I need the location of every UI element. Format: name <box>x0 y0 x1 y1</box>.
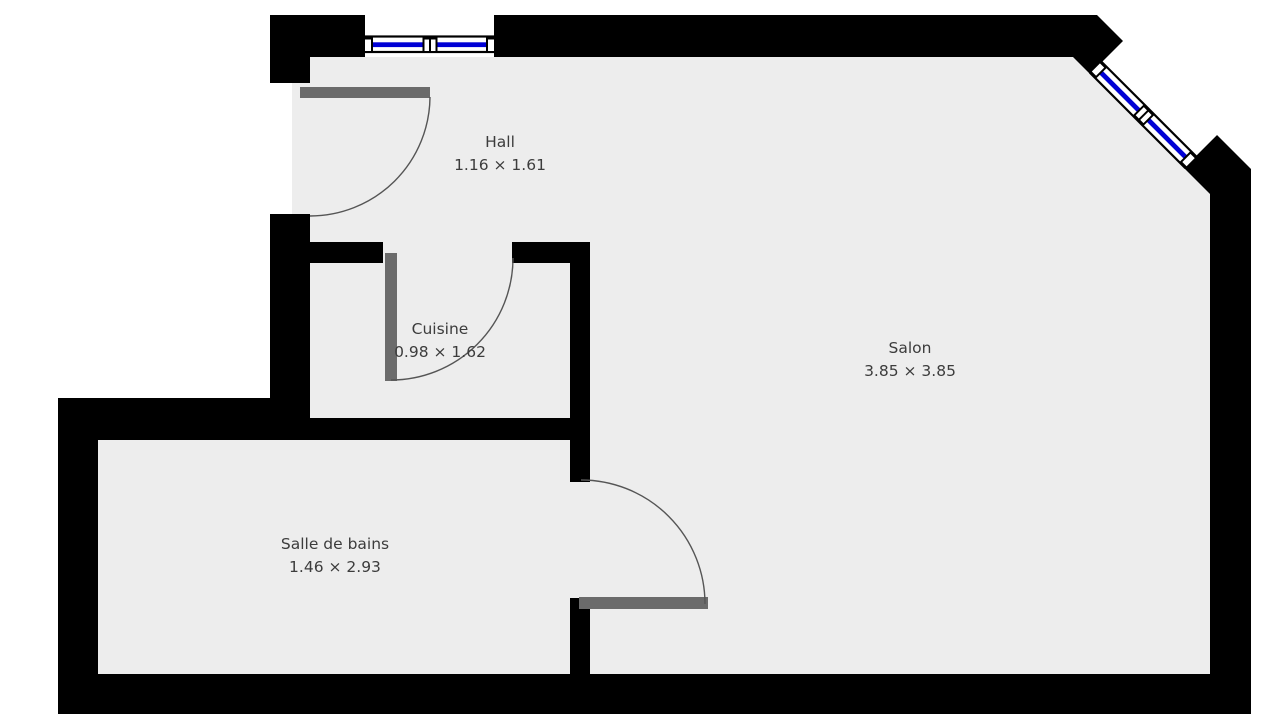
floor-plan-page: Hall 1.16 × 1.61 Cuisine 0.98 × 1.62 Sal… <box>0 0 1280 720</box>
entry-door-opening-outer <box>269 83 292 214</box>
cuisine-bathroom-wall <box>310 418 590 440</box>
room-dimensions: 1.16 × 1.61 <box>454 154 546 177</box>
window-mullion-icon <box>487 39 495 53</box>
bathroom-door-leaf <box>579 597 708 609</box>
room-dimensions: 0.98 × 1.62 <box>394 341 486 364</box>
entry-door-threshold <box>292 83 310 214</box>
cuisine-top-wall-left <box>310 242 383 263</box>
room-name: Cuisine <box>394 318 486 341</box>
entry-door-leaf <box>300 87 430 98</box>
room-label-cuisine: Cuisine 0.98 × 1.62 <box>394 318 486 364</box>
cuisine-door-threshold <box>383 242 512 263</box>
room-label-salle-de-bains: Salle de bains 1.46 × 2.93 <box>281 533 389 579</box>
room-dimensions: 1.46 × 2.93 <box>281 556 389 579</box>
room-dimensions: 3.85 × 3.85 <box>864 360 956 383</box>
window-mullion-icon <box>364 39 372 53</box>
room-label-hall: Hall 1.16 × 1.61 <box>454 131 546 177</box>
bathroom-door-threshold <box>570 482 590 598</box>
room-name: Salle de bains <box>281 533 389 556</box>
floor-plan-canvas <box>0 0 1280 720</box>
room-name: Salon <box>864 337 956 360</box>
top-window <box>364 37 495 53</box>
cuisine-salon-wall <box>570 242 590 482</box>
bathroom-salon-wall-stub <box>570 598 590 674</box>
room-label-salon: Salon 3.85 × 3.85 <box>864 337 956 383</box>
cuisine-top-wall-right <box>512 242 570 263</box>
room-name: Hall <box>454 131 546 154</box>
